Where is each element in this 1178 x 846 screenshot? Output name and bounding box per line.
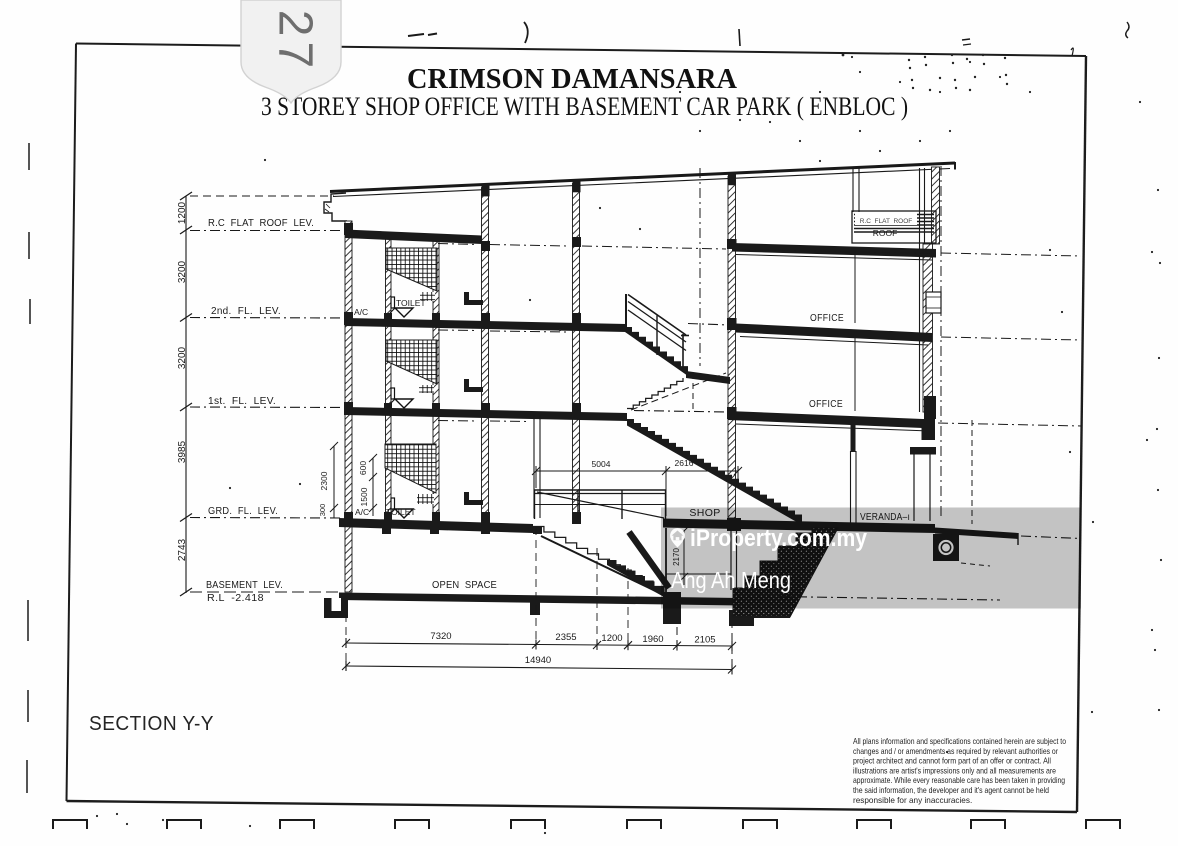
svg-text:3200: 3200: [177, 260, 188, 283]
svg-text:R.L -2.418: R.L -2.418: [207, 592, 264, 604]
svg-text:OFFICE: OFFICE: [809, 399, 843, 410]
svg-text:A/C: A/C: [354, 307, 368, 317]
svg-text:iProperty.com.my: iProperty.com.my: [690, 525, 868, 552]
svg-text:responsible for any inaccuraci: responsible for any inaccuracies.: [853, 796, 972, 805]
svg-text:14940: 14940: [525, 655, 551, 666]
svg-text:27: 27: [269, 10, 322, 73]
svg-text:BASEMENT LEV.: BASEMENT LEV.: [206, 580, 283, 591]
svg-text:3 STOREY SHOP OFFICE WITH BASE: 3 STOREY SHOP OFFICE WITH BASEMENT CAR P…: [261, 92, 908, 121]
svg-text:2616: 2616: [675, 458, 694, 468]
svg-text:A/C: A/C: [355, 507, 369, 517]
svg-text:SECTION Y-Y: SECTION Y-Y: [89, 712, 214, 735]
svg-text:Ang Ah Meng: Ang Ah Meng: [671, 567, 791, 593]
svg-text:illustrations are artist's imp: illustrations are artist's impressions o…: [853, 766, 1056, 775]
svg-text:OPEN SPACE: OPEN SPACE: [432, 579, 497, 591]
svg-text:OFFICE: OFFICE: [810, 313, 844, 324]
svg-text:R.C FLAT ROOF: R.C FLAT ROOF: [860, 218, 913, 225]
svg-text:1960: 1960: [642, 634, 663, 645]
svg-text:3985: 3985: [177, 440, 188, 463]
svg-text:TOILET: TOILET: [396, 298, 426, 308]
svg-text:changes and / or amendments as: changes and / or amendments as required …: [853, 747, 1058, 756]
svg-text:2nd. FL. LEV.: 2nd. FL. LEV.: [211, 306, 281, 317]
svg-text:2743: 2743: [177, 538, 188, 561]
svg-text:R.C FLAT ROOF LEV.: R.C FLAT ROOF LEV.: [208, 218, 314, 229]
svg-text:300: 300: [318, 504, 327, 517]
svg-text:All plans information and spec: All plans information and specifications…: [853, 737, 1066, 746]
svg-text:7320: 7320: [430, 631, 451, 642]
svg-text:2355: 2355: [555, 632, 576, 643]
svg-text:project architect and cannot f: project architect and cannot form part o…: [853, 757, 1051, 766]
svg-text:2105: 2105: [694, 635, 715, 646]
svg-text:5004: 5004: [592, 459, 611, 469]
svg-text:CRIMSON DAMANSARA: CRIMSON DAMANSARA: [407, 63, 737, 95]
svg-text:1500: 1500: [359, 487, 369, 506]
svg-text:ROOF: ROOF: [873, 228, 898, 238]
svg-text:1st. FL. LEV.: 1st. FL. LEV.: [208, 396, 276, 407]
svg-text:the said information, the deve: the said information, the developer and …: [853, 786, 1049, 795]
svg-text:1200: 1200: [177, 201, 188, 224]
svg-text:TOILET: TOILET: [386, 507, 416, 517]
svg-text:2300: 2300: [319, 471, 329, 490]
svg-text:1200: 1200: [601, 633, 622, 644]
svg-text:GRD. FL. LEV.: GRD. FL. LEV.: [208, 506, 278, 517]
svg-text:3200: 3200: [177, 346, 188, 369]
svg-text:approximate. While every reaso: approximate. While every reasonable care…: [853, 776, 1065, 785]
svg-text:600: 600: [358, 461, 368, 475]
